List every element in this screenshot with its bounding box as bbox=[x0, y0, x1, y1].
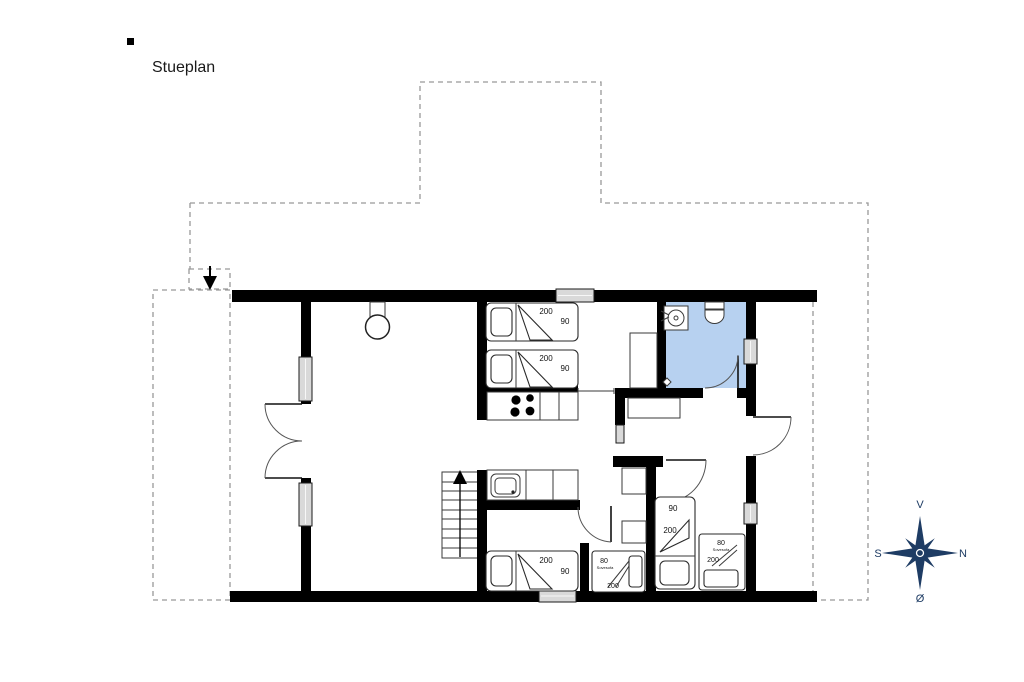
bed-bottom-left: 200 90 bbox=[486, 551, 578, 591]
pillow bbox=[660, 561, 689, 585]
sink-drain bbox=[511, 490, 514, 493]
wall-bottom-right bbox=[576, 591, 817, 602]
wall-top-left bbox=[232, 290, 557, 302]
wall-bathroom-south-stub bbox=[737, 388, 746, 398]
pillow bbox=[491, 308, 512, 336]
east-terrace-door-arc bbox=[753, 417, 791, 455]
pillow bbox=[629, 556, 642, 587]
wall-west-4 bbox=[301, 526, 311, 592]
bed-length-label: 200 bbox=[539, 354, 553, 363]
sofa-bed-middle: 80 Sovesofa 200 bbox=[592, 551, 645, 592]
wall-hall-vertical bbox=[615, 398, 625, 425]
bed-length-label: 200 bbox=[663, 526, 677, 535]
closet-top-bedroom bbox=[630, 333, 657, 388]
wall-bathroom-west bbox=[657, 290, 666, 390]
middle-bedroom-door-arc bbox=[578, 507, 611, 542]
wall-east-2 bbox=[746, 363, 756, 416]
wall-east-4 bbox=[746, 523, 756, 592]
compass-rose: V N S Ø bbox=[874, 499, 967, 605]
sofa-length-label: 200 bbox=[707, 557, 719, 564]
sofa-width-label: 80 bbox=[717, 540, 725, 547]
right-bedroom-door-arc bbox=[666, 460, 706, 502]
entry-arrow bbox=[203, 266, 217, 290]
wood-stove bbox=[366, 302, 390, 339]
bed-length-label: 200 bbox=[539, 556, 553, 565]
bed-top-1: 200 90 bbox=[486, 303, 578, 341]
pillow bbox=[704, 570, 738, 587]
sofa-bed-right: 80 Sovesofa 200 bbox=[699, 534, 745, 590]
compass-south-label: S bbox=[874, 548, 881, 560]
wall-bottom-left bbox=[230, 591, 539, 602]
entry-arrow-head bbox=[203, 276, 217, 290]
wall-west-1 bbox=[301, 302, 311, 358]
sofa-type-label: Sovesofa bbox=[713, 547, 730, 552]
sofa-length-label: 200 bbox=[607, 583, 619, 590]
compass-west-label: V bbox=[916, 499, 924, 511]
west-terrace-dashed bbox=[153, 290, 230, 600]
closet-middle-bedroom-1 bbox=[622, 468, 646, 494]
bed-right: 90 200 bbox=[655, 497, 695, 589]
closet-hall bbox=[628, 398, 680, 418]
compass-center bbox=[912, 545, 929, 562]
french-door-arc-top bbox=[265, 404, 302, 441]
french-door-arc-bottom bbox=[265, 441, 302, 478]
pillow bbox=[491, 556, 512, 586]
bed-length-label: 200 bbox=[539, 307, 553, 316]
floor-plan-page: Stueplan bbox=[0, 0, 1024, 682]
pillow bbox=[491, 355, 512, 383]
bed-width-label: 90 bbox=[669, 504, 678, 513]
staircase bbox=[442, 470, 477, 558]
closet-middle-bedroom-2 bbox=[622, 521, 646, 543]
bed-width-label: 90 bbox=[561, 317, 570, 326]
wall-east-1 bbox=[746, 302, 756, 340]
floor-plan: 200 90 200 90 200 90 bbox=[0, 0, 1024, 682]
wall-left-mid-divider bbox=[580, 543, 589, 592]
stove-body bbox=[366, 315, 390, 339]
toilet-tank bbox=[705, 302, 724, 309]
sofa-type-label: Sovesofa bbox=[597, 565, 614, 570]
bed-width-label: 90 bbox=[561, 364, 570, 373]
wall-bathroom-south bbox=[615, 388, 703, 398]
wall-bedroom-bl-north bbox=[480, 500, 580, 510]
kitchen bbox=[487, 392, 578, 500]
hall-sliding-door-leaf bbox=[616, 425, 624, 443]
compass-east-label: Ø bbox=[916, 593, 925, 605]
sofa-width-label: 80 bbox=[600, 558, 608, 565]
wall-top-right bbox=[593, 290, 817, 302]
wall-east-3 bbox=[746, 456, 756, 504]
bed-top-2: 200 90 bbox=[486, 350, 578, 388]
toilet-bowl bbox=[705, 310, 724, 324]
bed-width-label: 90 bbox=[561, 567, 570, 576]
compass-north-label: N bbox=[959, 548, 967, 560]
